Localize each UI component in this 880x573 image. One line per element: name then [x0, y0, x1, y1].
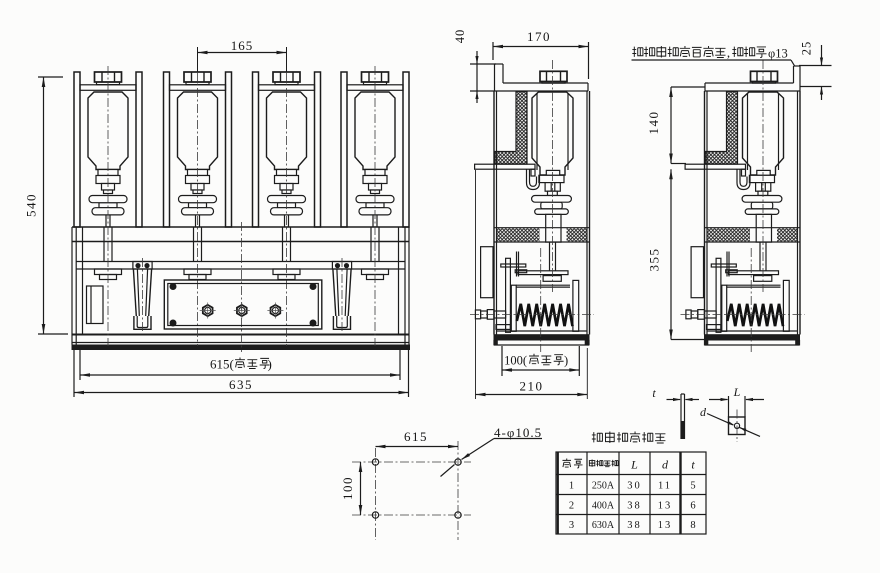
svg-text:250A: 250A: [592, 481, 615, 492]
svg-text:210: 210: [520, 379, 544, 394]
svg-text:38: 38: [627, 501, 642, 512]
svg-text:615(: 615(: [210, 357, 234, 372]
svg-text:): ): [564, 354, 568, 368]
svg-text:13: 13: [658, 520, 673, 531]
svg-text:4-φ10.5: 4-φ10.5: [494, 425, 542, 440]
svg-text:): ): [268, 357, 272, 372]
svg-text:400A: 400A: [592, 501, 615, 512]
svg-text:,: ,: [727, 45, 730, 60]
svg-text:100: 100: [340, 476, 355, 500]
svg-text:2: 2: [569, 501, 574, 512]
svg-text:170: 170: [527, 29, 551, 44]
svg-text:13: 13: [658, 501, 673, 512]
svg-text:630A: 630A: [592, 520, 615, 531]
svg-text:25: 25: [800, 41, 814, 56]
svg-text:L: L: [630, 458, 638, 472]
svg-text:3: 3: [569, 520, 574, 531]
svg-text:φ13: φ13: [768, 47, 788, 61]
svg-text:5: 5: [690, 481, 695, 492]
svg-text:635: 635: [229, 377, 253, 392]
svg-text:40: 40: [453, 29, 467, 44]
svg-text:6: 6: [690, 501, 695, 512]
svg-text:d: d: [662, 458, 669, 472]
svg-text:38: 38: [627, 520, 642, 531]
svg-text:165: 165: [231, 38, 254, 53]
svg-text:540: 540: [24, 193, 39, 217]
svg-text:11: 11: [658, 481, 672, 492]
svg-text:355: 355: [647, 248, 662, 272]
svg-text:30: 30: [627, 481, 642, 492]
svg-text:100(: 100(: [504, 354, 527, 368]
svg-text:8: 8: [690, 520, 695, 531]
svg-text:d: d: [700, 405, 707, 419]
svg-text:140: 140: [646, 111, 661, 135]
svg-text:615: 615: [404, 429, 428, 444]
svg-text:L: L: [733, 385, 741, 399]
svg-text:1: 1: [569, 481, 574, 492]
